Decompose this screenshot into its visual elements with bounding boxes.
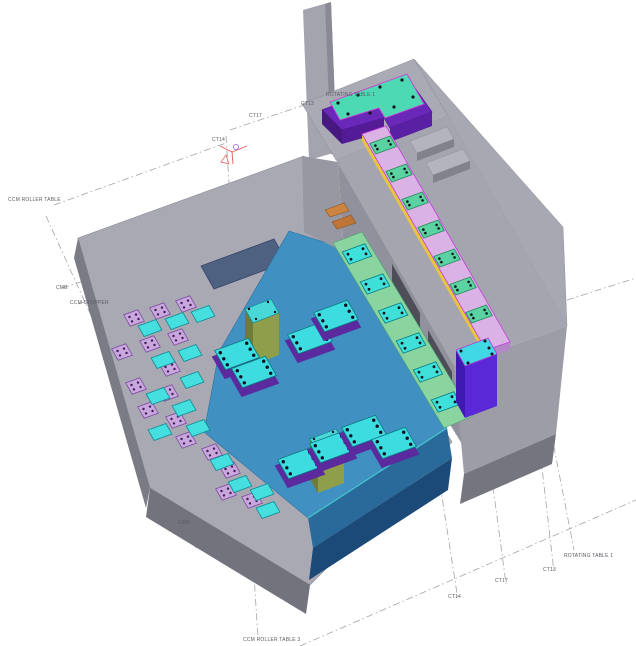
bolt-dot xyxy=(180,438,182,440)
label-ccm-roller-table-3: CCM ROLLER TABLE 3 xyxy=(243,637,300,643)
bolt-dot xyxy=(245,342,248,345)
bolt-dot xyxy=(436,401,439,404)
bolt-dot xyxy=(349,434,352,437)
label-ccm-roller-table: CCM ROLLER TABLE xyxy=(8,197,61,203)
bolt-dot xyxy=(145,412,147,414)
bolt-dot xyxy=(170,418,172,420)
pedestal xyxy=(456,338,497,418)
bolt-dot xyxy=(161,306,163,308)
bolt-dot xyxy=(209,454,211,456)
bolt-dot xyxy=(376,440,379,443)
label-ct13-upper: CT13 xyxy=(301,101,314,107)
bolt-dot xyxy=(398,306,401,309)
bolt-dot xyxy=(181,337,183,339)
bolt-dot xyxy=(266,366,269,369)
bolt-dot xyxy=(292,335,295,338)
label-ccm-stopper: CCM STOPPER xyxy=(70,300,109,306)
bolt-dot xyxy=(436,371,439,374)
label-ct17-upper: CT17 xyxy=(249,113,262,119)
bolt-dot xyxy=(353,440,356,443)
label-ct13-lower: CT13 xyxy=(543,567,556,573)
bolt-dot xyxy=(179,332,181,334)
bolt-dot xyxy=(405,171,408,174)
bolt-dot xyxy=(389,143,392,146)
bolt-dot xyxy=(451,395,454,398)
bolt-dot xyxy=(321,319,324,322)
bolt-dot xyxy=(469,284,472,287)
bolt-dot xyxy=(116,350,118,352)
bolt-dot xyxy=(347,253,350,256)
bolt-dot xyxy=(151,410,153,412)
bolt-dot xyxy=(231,465,233,467)
bolt-dot xyxy=(439,406,442,409)
bolt-dot xyxy=(282,460,285,463)
bolt-dot xyxy=(419,196,422,199)
bolt-dot xyxy=(365,253,368,256)
bolt-dot xyxy=(269,372,272,375)
bolt-dot xyxy=(153,344,155,346)
bolt-dot xyxy=(404,347,407,350)
bolt-dot xyxy=(139,386,141,388)
bolt-dot xyxy=(419,342,422,345)
bolt-dot xyxy=(227,472,229,474)
bolt-dot xyxy=(350,258,353,261)
bolt-dot xyxy=(472,317,475,320)
bolt-dot xyxy=(380,277,383,280)
bolt-dot xyxy=(372,419,375,422)
bolt-dot xyxy=(433,365,436,368)
bolt-dot xyxy=(362,247,365,250)
bolt-dot xyxy=(402,431,405,434)
bolt-dot xyxy=(157,313,159,315)
bolt-dot xyxy=(144,342,146,344)
bolt-dot xyxy=(172,335,174,337)
bolt-dot xyxy=(223,494,225,496)
bolt-dot xyxy=(169,388,171,390)
bolt-dot xyxy=(421,199,424,202)
label-ct14-lower: CT14 xyxy=(448,594,461,600)
bolt-dot xyxy=(379,446,382,449)
bolt-dot xyxy=(409,443,412,446)
bolt-dot xyxy=(215,452,217,454)
bolt-dot xyxy=(187,299,189,301)
bolt-dot xyxy=(189,304,191,306)
bolt-dot xyxy=(408,204,411,207)
bolt-dot xyxy=(435,224,438,227)
bolt-dot xyxy=(416,336,419,339)
bolt-dot xyxy=(289,472,292,475)
bolt-dot xyxy=(125,352,127,354)
bolt-dot xyxy=(406,200,409,203)
bolt-dot xyxy=(233,470,235,472)
bolt-dot xyxy=(224,468,226,470)
bolt-dot xyxy=(318,313,321,316)
bolt-dot xyxy=(128,316,130,318)
bolt-dot xyxy=(167,370,169,372)
bolt-dot xyxy=(137,381,139,383)
bolt-dot xyxy=(220,490,222,492)
bolt-dot xyxy=(142,408,144,410)
bolt-dot xyxy=(383,283,386,286)
bolt-dot xyxy=(365,283,368,286)
bolt-dot xyxy=(453,256,456,259)
bolt-dot xyxy=(422,228,425,231)
bolt-dot xyxy=(175,339,177,341)
bolt-dot xyxy=(485,312,488,315)
bolt-dot xyxy=(243,381,246,384)
bolt-dot xyxy=(249,502,251,504)
bolt-dot xyxy=(173,422,175,424)
scene-svg: CCM ROLLER TABLE CMB CCM STOPPER CT14 CT… xyxy=(0,0,636,646)
label-cmb-lower: CMB xyxy=(178,520,190,526)
bolt-dot xyxy=(383,452,386,455)
bolt-dot xyxy=(437,227,440,230)
bolt-dot xyxy=(187,435,189,437)
bolt-dot xyxy=(451,253,454,256)
bolt-dot xyxy=(351,316,354,319)
bolt-dot xyxy=(295,341,298,344)
bolt-dot xyxy=(180,302,182,304)
bolt-dot xyxy=(376,148,379,151)
bolt-dot xyxy=(454,285,457,288)
bolt-dot xyxy=(249,348,252,351)
bolt-dot xyxy=(226,363,229,366)
bolt-dot xyxy=(262,360,265,363)
bolt-dot xyxy=(403,168,406,171)
bolt-dot xyxy=(467,281,470,284)
bolt-dot xyxy=(344,304,347,307)
bolt-dot xyxy=(376,425,379,428)
bolt-dot xyxy=(219,351,222,354)
label-cmb-upper: CMB xyxy=(56,285,68,291)
bolt-dot xyxy=(470,313,473,316)
bolt-dot xyxy=(321,456,324,459)
bolt-dot xyxy=(189,440,191,442)
bolt-dot xyxy=(151,339,153,341)
bolt-dot xyxy=(213,447,215,449)
bolt-dot xyxy=(131,320,133,322)
bolt-dot xyxy=(239,375,242,378)
bolt-dot xyxy=(424,232,427,235)
bolt-dot xyxy=(454,401,457,404)
bolt-dot xyxy=(325,325,328,328)
bolt-dot xyxy=(392,176,395,179)
bolt-dot xyxy=(236,369,239,372)
bolt-dot xyxy=(147,346,149,348)
bolt-dot xyxy=(171,393,173,395)
bolt-dot xyxy=(206,450,208,452)
bolt-dot xyxy=(123,347,125,349)
bolt-dot xyxy=(401,312,404,315)
label-ct14-upper: CT14 xyxy=(212,137,225,143)
bolt-dot xyxy=(246,498,248,500)
bolt-dot xyxy=(222,357,225,360)
bolt-dot xyxy=(285,466,288,469)
bolt-dot xyxy=(135,313,137,315)
bolt-dot xyxy=(456,289,459,292)
cad-3d-viewport[interactable]: CCM ROLLER TABLE CMB CCM STOPPER CT14 CT… xyxy=(0,0,636,646)
bolt-dot xyxy=(183,442,185,444)
bolt-dot xyxy=(406,437,409,440)
bolt-dot xyxy=(133,388,135,390)
bolt-dot xyxy=(418,371,421,374)
bolt-dot xyxy=(179,420,181,422)
bolt-dot xyxy=(252,354,255,357)
bolt-dot xyxy=(368,288,371,291)
bolt-dot xyxy=(348,310,351,313)
bolt-dot xyxy=(137,318,139,320)
bolt-dot xyxy=(387,140,390,143)
bolt-dot xyxy=(346,428,349,431)
bolt-dot xyxy=(299,347,302,350)
bolt-dot xyxy=(173,368,175,370)
bolt-dot xyxy=(119,354,121,356)
label-ct17-lower: CT17 xyxy=(495,578,508,584)
bolt-dot xyxy=(374,144,377,147)
bolt-dot xyxy=(440,261,443,264)
bolt-dot xyxy=(383,312,386,315)
bolt-dot xyxy=(390,172,393,175)
bolt-dot xyxy=(130,384,132,386)
bolt-dot xyxy=(379,431,382,434)
bolt-dot xyxy=(183,306,185,308)
ucs-origin-marker xyxy=(220,144,247,164)
label-rotating-table-lower: ROTATING TABLE 1 xyxy=(564,553,613,559)
bolt-dot xyxy=(386,317,389,320)
bolt-dot xyxy=(421,376,424,379)
bolt-dot xyxy=(438,257,441,260)
label-rotating-table-upper: ROTATING TABLE 1 xyxy=(326,92,375,98)
bolt-dot xyxy=(229,492,231,494)
bolt-dot xyxy=(227,487,229,489)
bolt-dot xyxy=(154,309,156,311)
bolt-dot xyxy=(163,311,165,313)
bolt-dot xyxy=(401,342,404,345)
bolt-dot xyxy=(149,405,151,407)
bolt-dot xyxy=(314,444,317,447)
bolt-dot xyxy=(317,450,320,453)
bolt-dot xyxy=(483,309,486,312)
